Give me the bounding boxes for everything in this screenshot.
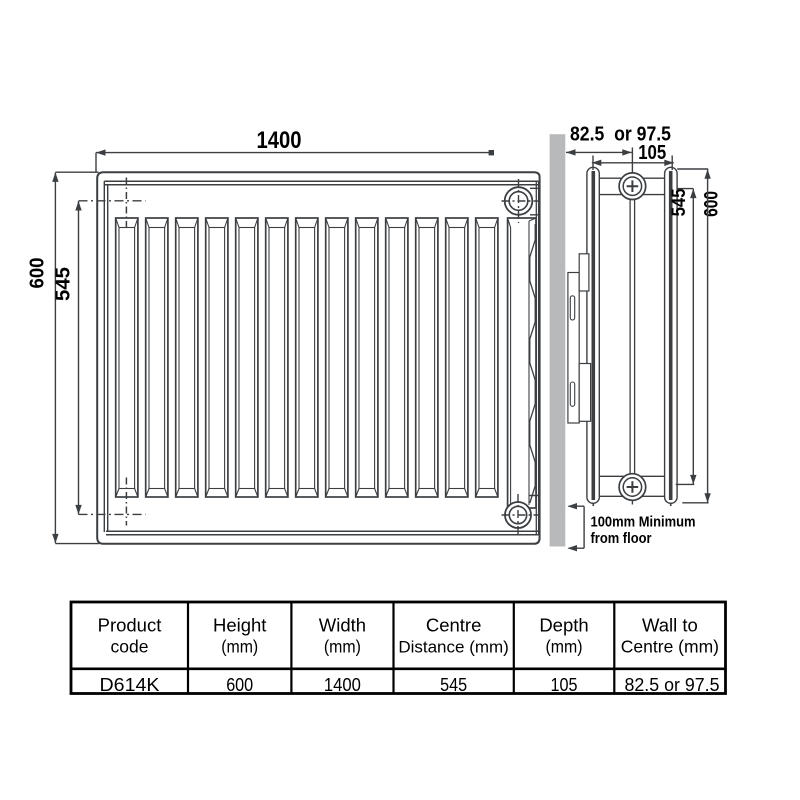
svg-text:100mm Minimum: 100mm Minimum [591,514,696,531]
svg-text:Wall to: Wall to [642,615,698,636]
svg-text:Depth: Depth [539,615,588,636]
svg-text:600: 600 [702,191,723,217]
svg-text:Centre (mm): Centre (mm) [621,637,719,657]
svg-text:D614K: D614K [100,675,160,695]
svg-text:code: code [111,637,149,657]
svg-text:82.5 or 97.5: 82.5 or 97.5 [625,675,720,695]
svg-text:(mm): (mm) [221,637,258,657]
svg-text:Product: Product [98,615,162,636]
svg-text:Width: Width [319,615,366,636]
svg-text:105: 105 [551,675,578,695]
svg-text:Distance (mm): Distance (mm) [398,638,509,657]
svg-text:545: 545 [53,267,75,301]
svg-text:1400: 1400 [257,127,302,154]
svg-text:(mm): (mm) [324,637,361,657]
svg-text:Centre: Centre [426,615,482,636]
svg-text:Height: Height [213,615,266,636]
svg-text:105: 105 [638,142,666,164]
svg-text:(mm): (mm) [546,637,583,657]
svg-text:600: 600 [27,258,49,289]
svg-text:600: 600 [226,675,253,695]
svg-text:from floor: from floor [591,530,652,547]
svg-text:545: 545 [669,188,690,216]
svg-text:1400: 1400 [324,675,361,695]
svg-text:545: 545 [440,675,467,695]
